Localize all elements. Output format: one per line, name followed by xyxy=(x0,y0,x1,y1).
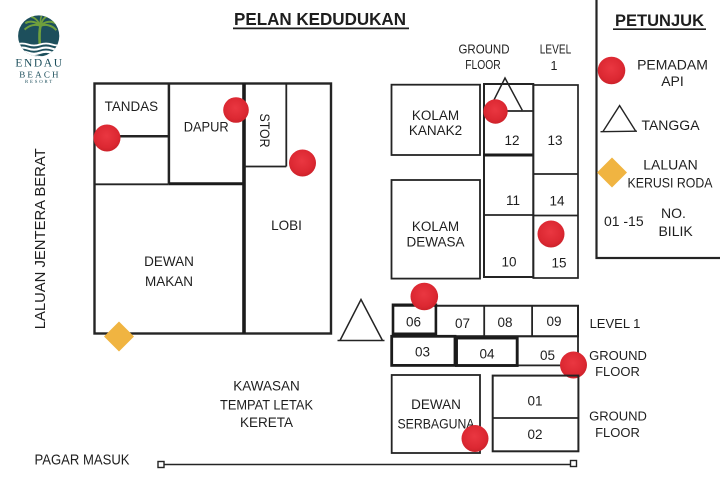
svg-text:KANAK2: KANAK2 xyxy=(409,123,462,138)
svg-text:BEACH: BEACH xyxy=(19,69,61,79)
svg-text:11: 11 xyxy=(506,193,520,208)
svg-text:03: 03 xyxy=(415,345,430,360)
svg-text:12: 12 xyxy=(504,133,519,148)
svg-text:LOBI: LOBI xyxy=(271,217,302,233)
svg-text:DEWAN: DEWAN xyxy=(411,397,461,412)
svg-text:LEVEL: LEVEL xyxy=(540,43,572,57)
svg-text:FLOOR: FLOOR xyxy=(595,364,640,379)
svg-text:13: 13 xyxy=(547,133,562,148)
svg-text:STOR: STOR xyxy=(257,114,273,148)
svg-text:1: 1 xyxy=(551,59,558,73)
svg-text:KERUSI RODA: KERUSI RODA xyxy=(628,174,714,190)
svg-text:DEWASA: DEWASA xyxy=(406,235,464,250)
svg-text:14: 14 xyxy=(549,194,565,209)
svg-text:LALUAN JENTERA BERAT: LALUAN JENTERA BERAT xyxy=(32,148,49,329)
svg-text:08: 08 xyxy=(497,315,512,330)
svg-text:KAWASAN: KAWASAN xyxy=(233,379,300,394)
svg-text:09: 09 xyxy=(546,314,561,329)
svg-text:PEMADAM: PEMADAM xyxy=(637,56,708,72)
svg-text:DEWAN: DEWAN xyxy=(144,254,194,269)
svg-text:TANDAS: TANDAS xyxy=(105,98,159,114)
svg-text:BILIK: BILIK xyxy=(658,223,693,239)
svg-text:PAGAR MASUK: PAGAR MASUK xyxy=(35,453,130,469)
svg-text:KOLAM: KOLAM xyxy=(412,108,459,123)
svg-text:10: 10 xyxy=(501,255,516,270)
svg-text:PETUNJUK: PETUNJUK xyxy=(615,11,705,30)
svg-text:DAPUR: DAPUR xyxy=(184,118,229,134)
svg-text:05: 05 xyxy=(540,348,555,363)
svg-text:LEVEL 1: LEVEL 1 xyxy=(590,316,641,331)
svg-text:GROUND: GROUND xyxy=(589,348,647,363)
svg-text:API: API xyxy=(661,73,684,89)
svg-text:TANGGA: TANGGA xyxy=(641,117,700,133)
svg-text:TEMPAT LETAK: TEMPAT LETAK xyxy=(220,398,313,413)
svg-text:ENDAU: ENDAU xyxy=(15,57,63,69)
svg-text:01: 01 xyxy=(527,394,542,409)
svg-text:PELAN KEDUDUKAN: PELAN KEDUDUKAN xyxy=(234,9,406,29)
svg-text:FLOOR: FLOOR xyxy=(595,425,640,440)
svg-text:GROUND: GROUND xyxy=(459,43,510,57)
svg-text:KERETA: KERETA xyxy=(240,415,293,430)
svg-text:GROUND: GROUND xyxy=(589,409,647,424)
svg-text:06: 06 xyxy=(406,314,421,329)
svg-text:01 -15: 01 -15 xyxy=(604,213,644,229)
svg-text:MAKAN: MAKAN xyxy=(145,274,193,289)
svg-text:FLOOR: FLOOR xyxy=(465,58,501,72)
svg-text:KOLAM: KOLAM xyxy=(412,219,459,234)
svg-text:02: 02 xyxy=(527,427,542,442)
svg-text:07: 07 xyxy=(455,316,470,331)
svg-text:15: 15 xyxy=(551,256,566,271)
svg-text:04: 04 xyxy=(479,346,495,361)
svg-text:LALUAN: LALUAN xyxy=(643,156,697,172)
svg-text:SERBAGUNA: SERBAGUNA xyxy=(398,417,475,432)
svg-text:NO.: NO. xyxy=(661,205,686,221)
svg-text:RESORT: RESORT xyxy=(25,80,54,85)
